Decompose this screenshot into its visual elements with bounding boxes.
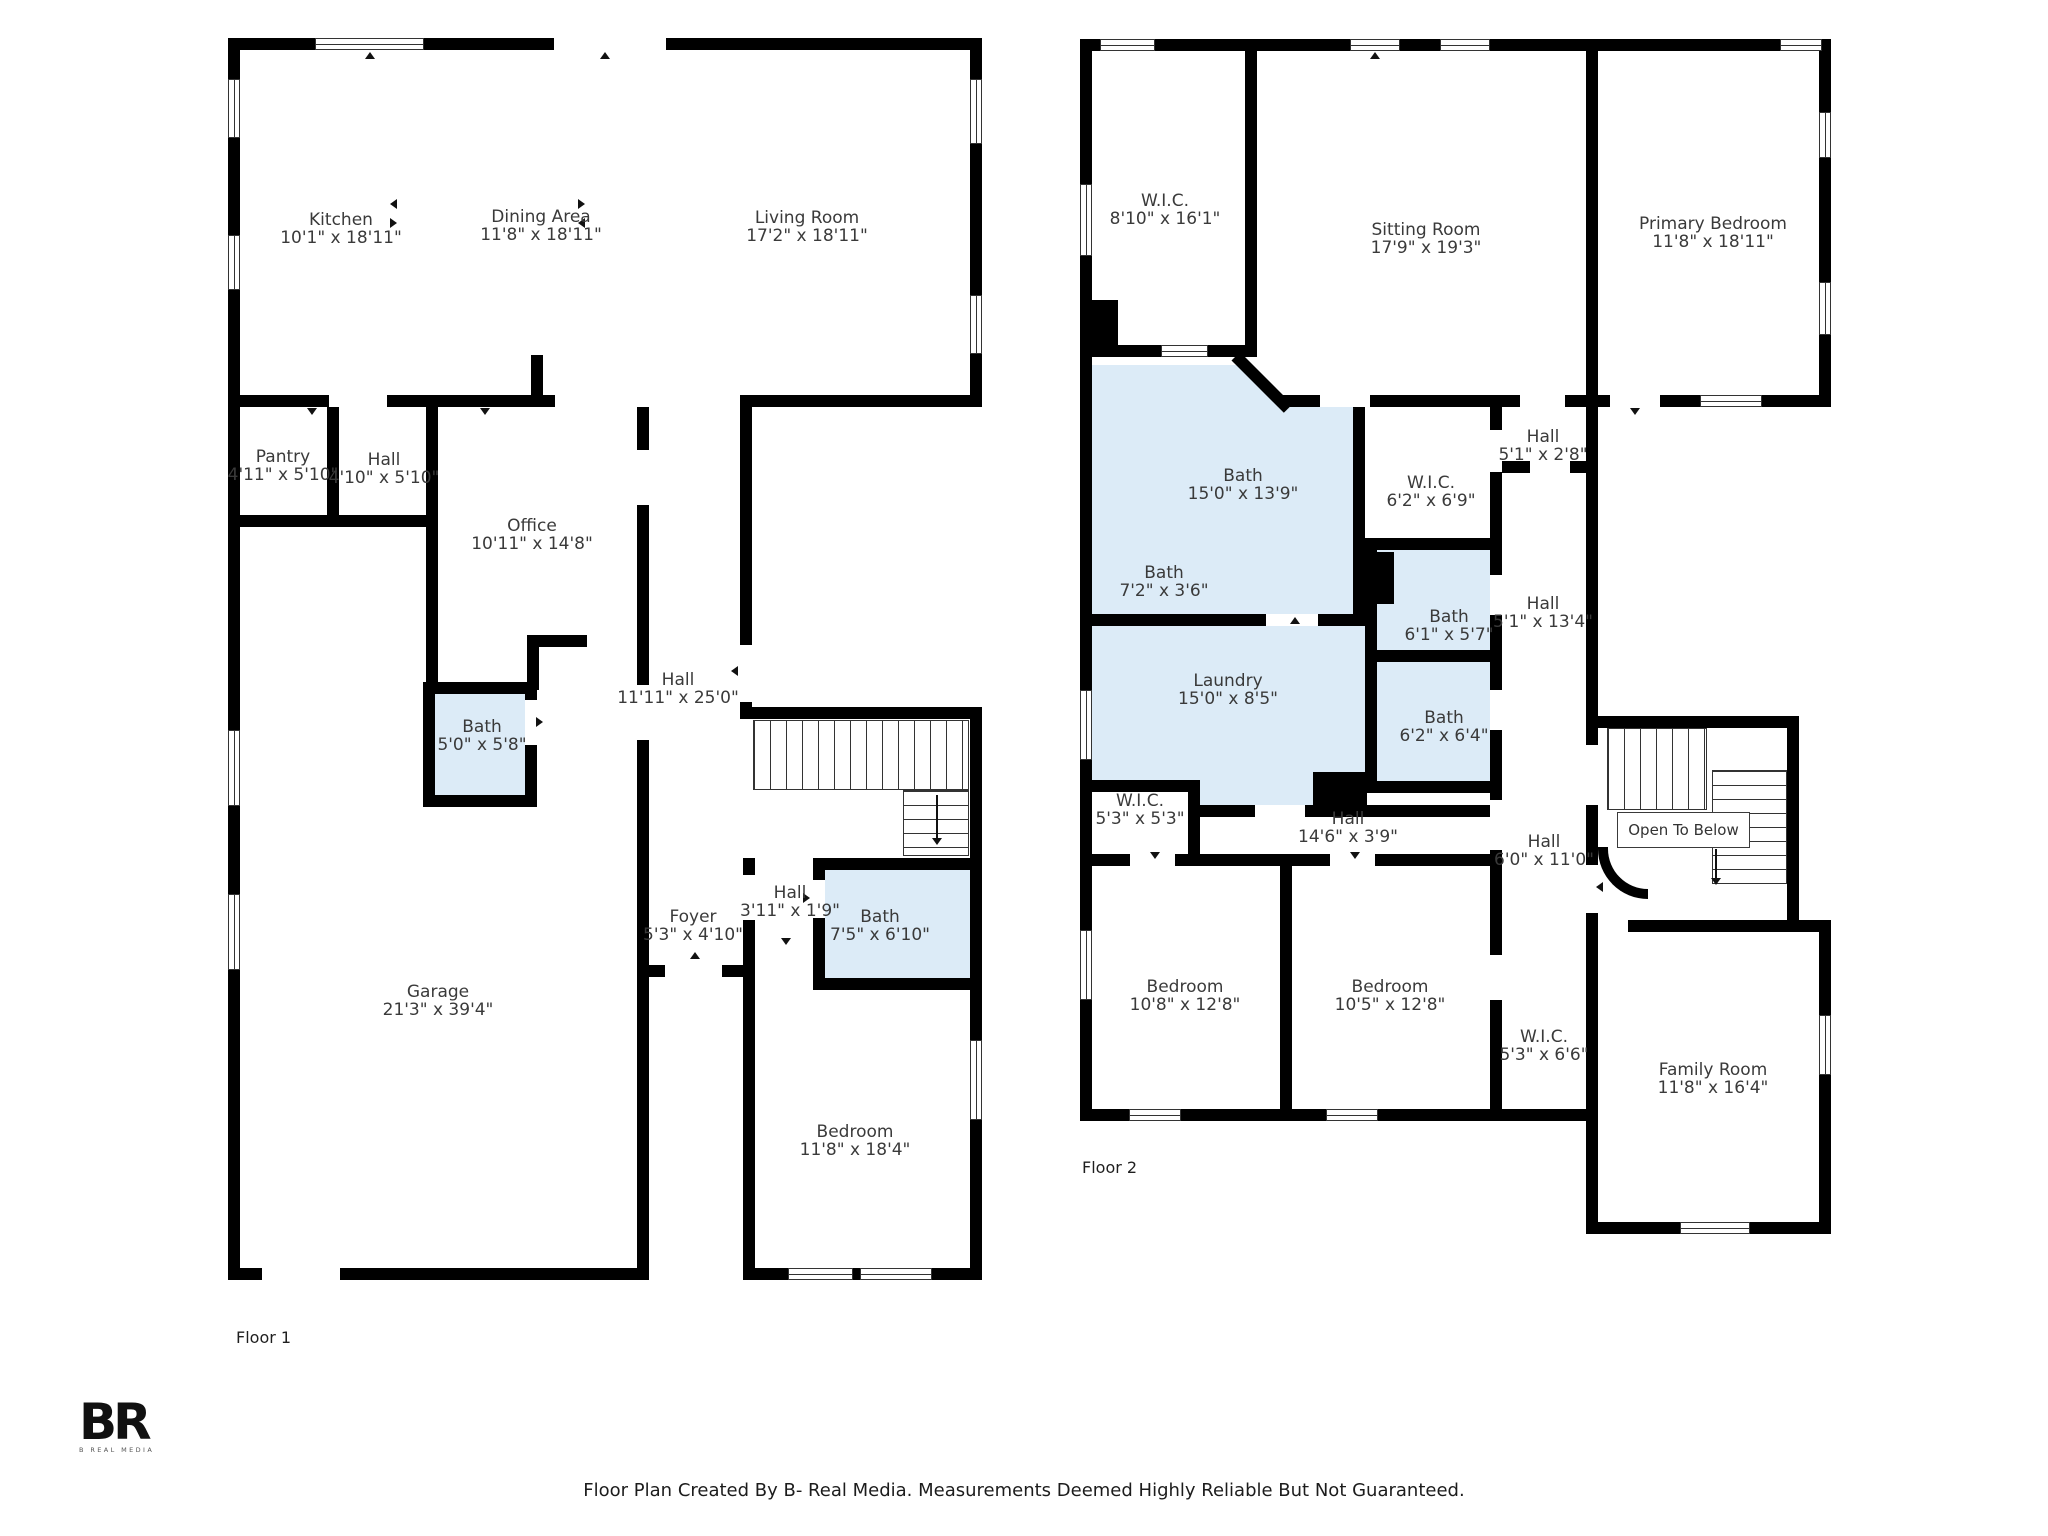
window — [1819, 282, 1831, 335]
door-opening — [1320, 395, 1370, 407]
room-dims: 11'8" x 18'4" — [800, 1141, 911, 1159]
room-dims: 10'5" x 12'8" — [1335, 996, 1446, 1014]
door-marker-icon — [1150, 852, 1160, 859]
room-label: Pantry4'11" x 5'10" — [228, 448, 339, 484]
door-opening — [1490, 955, 1502, 1000]
room-dims: 11'8" x 18'11" — [1639, 233, 1787, 251]
room-dims: 5'1" x 2'8" — [1498, 446, 1587, 464]
room-name: W.I.C. — [1110, 192, 1221, 210]
window — [1080, 690, 1092, 760]
door-marker-icon — [1350, 852, 1360, 859]
wall — [1245, 39, 1257, 355]
room-name: Hall — [329, 451, 440, 469]
room-name: Foyer — [643, 908, 743, 926]
door-marker-icon — [600, 52, 610, 59]
door-opening — [665, 965, 722, 977]
door-marker-icon — [390, 199, 397, 209]
door-opening — [554, 38, 666, 50]
wall — [228, 38, 240, 1280]
room-dims: 6'2" x 6'9" — [1386, 492, 1475, 510]
wall — [1819, 920, 1831, 1234]
window — [970, 79, 982, 144]
floor1-caption: Floor 1 — [236, 1328, 291, 1347]
window — [1129, 1109, 1181, 1121]
curved-wall — [1598, 847, 1648, 899]
floor-plan-canvas: Open To Below Kitchen10'1" x 18'11"Dinin… — [0, 0, 2048, 1536]
room-label: Office10'11" x 14'8" — [471, 517, 593, 553]
door-marker-icon — [480, 408, 490, 415]
room-label: Bath7'2" x 3'6" — [1119, 564, 1208, 600]
door-opening — [740, 645, 752, 702]
wall — [637, 407, 649, 1280]
window — [788, 1268, 853, 1280]
window — [1161, 345, 1208, 357]
room-name: Bedroom — [800, 1123, 911, 1141]
room-name: Sitting Room — [1371, 221, 1482, 239]
window — [1440, 39, 1490, 51]
wall — [1280, 866, 1292, 1109]
wall — [743, 858, 755, 1280]
door-opening — [1610, 395, 1660, 407]
wall — [423, 682, 537, 694]
wall — [531, 355, 543, 407]
window — [228, 730, 240, 806]
room-label: W.I.C.5'3" x 6'6" — [1499, 1028, 1588, 1064]
room-dims: 5'3" x 4'10" — [643, 926, 743, 944]
window — [228, 79, 240, 138]
wall — [1353, 407, 1365, 626]
room-dims: 10'8" x 12'8" — [1130, 996, 1241, 1014]
wall — [970, 707, 982, 1280]
wall — [1490, 407, 1502, 1109]
room-label: W.I.C.5'3" x 5'3" — [1095, 792, 1184, 828]
window — [1819, 1015, 1831, 1075]
door-marker-icon — [1596, 882, 1603, 892]
room-label: Kitchen10'1" x 18'11" — [280, 211, 402, 247]
door-opening — [1490, 690, 1502, 730]
staircase-f2-upper — [1607, 728, 1707, 810]
wall — [1628, 920, 1831, 932]
room-label: W.I.C.8'10" x 16'1" — [1110, 192, 1221, 228]
room-label: Bedroom11'8" x 18'4" — [800, 1123, 911, 1159]
room-label: Sitting Room17'9" x 19'3" — [1371, 221, 1482, 257]
room-dims: 3'11" x 1'9" — [740, 902, 840, 920]
room-name: W.I.C. — [1386, 474, 1475, 492]
room-label: Bedroom10'5" x 12'8" — [1335, 978, 1446, 1014]
door-opening — [1520, 395, 1565, 407]
door-marker-icon — [365, 52, 375, 59]
room-label: Hall6'0" x 11'0" — [1494, 833, 1594, 869]
room-name: Garage — [383, 983, 494, 1001]
room-label: Laundry15'0" x 8'5" — [1178, 672, 1278, 708]
room-name: Hall — [1494, 833, 1594, 851]
wall — [813, 978, 982, 990]
wall — [423, 795, 537, 807]
stair-arrow-head-f1 — [932, 838, 942, 845]
wall — [1595, 716, 1799, 728]
wall — [426, 527, 438, 690]
window — [1326, 1109, 1378, 1121]
wall — [1353, 538, 1502, 550]
door-marker-icon — [1370, 52, 1380, 59]
room-name: Bedroom — [1130, 978, 1241, 996]
room-name: W.I.C. — [1095, 792, 1184, 810]
room-dims: 5'3" x 5'3" — [1095, 810, 1184, 828]
room-name: Hall — [617, 671, 739, 689]
room-label: Hall4'10" x 5'10" — [329, 451, 440, 487]
room-name: Pantry — [228, 448, 339, 466]
room-name: Bath — [1404, 608, 1493, 626]
room-label: Bath7'5" x 6'10" — [830, 908, 930, 944]
room-name: Office — [471, 517, 593, 535]
stair-arrow-f1 — [936, 795, 938, 839]
room-label: Bath15'0" x 13'9" — [1188, 467, 1299, 503]
room-name: Bath — [1119, 564, 1208, 582]
room-name: W.I.C. — [1499, 1028, 1588, 1046]
room-dims: 17'2" x 18'11" — [746, 227, 868, 245]
room-label: Living Room17'2" x 18'11" — [746, 209, 868, 245]
door-opening — [262, 1268, 340, 1280]
room-name: Primary Bedroom — [1639, 215, 1787, 233]
window — [1680, 1222, 1750, 1234]
room-label: Bath6'1" x 5'7" — [1404, 608, 1493, 644]
open-to-below-label: Open To Below — [1617, 812, 1750, 848]
window — [1100, 39, 1155, 51]
room-label: Hall11'11" x 25'0" — [617, 671, 739, 707]
wall — [1586, 39, 1598, 407]
door-opening — [329, 395, 387, 407]
brand-logo: BR B REAL MEDIA — [79, 1398, 154, 1454]
room-dims: 5'3" x 6'6" — [1499, 1046, 1588, 1064]
window — [970, 295, 982, 354]
room-label: Garage21'3" x 39'4" — [383, 983, 494, 1019]
room-name: Hall — [1493, 595, 1593, 613]
room-dims: 8'10" x 16'1" — [1110, 210, 1221, 228]
room-dims: 10'1" x 18'11" — [280, 229, 402, 247]
room-name: Bath — [1188, 467, 1299, 485]
room-name: Kitchen — [280, 211, 402, 229]
room-dims: 5'0" x 5'8" — [437, 736, 526, 754]
room-dims: 15'0" x 13'9" — [1188, 485, 1299, 503]
room-name: Bath — [830, 908, 930, 926]
stair-arrow-head-f2 — [1711, 878, 1721, 885]
room-name: Dining Area — [480, 208, 602, 226]
floor2-caption: Floor 2 — [1082, 1158, 1137, 1177]
door-opening — [637, 450, 649, 505]
room-dims: 6'0" x 11'0" — [1494, 851, 1594, 869]
wall — [740, 395, 982, 407]
room-dims: 7'5" x 6'10" — [830, 926, 930, 944]
room-label: Foyer5'3" x 4'10" — [643, 908, 743, 944]
wall — [1080, 300, 1118, 350]
wall — [387, 395, 555, 407]
wall — [228, 515, 438, 527]
window — [1700, 395, 1762, 407]
stair-arrow-f2 — [1715, 849, 1717, 879]
window — [860, 1268, 932, 1280]
room-dims: 17'9" x 19'3" — [1371, 239, 1482, 257]
room-dims: 7'2" x 3'6" — [1119, 582, 1208, 600]
wall — [1819, 39, 1831, 407]
wall — [740, 707, 982, 719]
window — [1080, 930, 1092, 1000]
room-dims: 4'10" x 5'10" — [329, 469, 440, 487]
room-label: Bath6'2" x 6'4" — [1399, 709, 1488, 745]
brand-logo-mark: BR — [79, 1398, 154, 1446]
room-label: Hall5'1" x 13'4" — [1493, 595, 1593, 631]
room-name: Hall — [740, 884, 840, 902]
room-dims: 11'8" x 18'11" — [480, 226, 602, 244]
room-dims: 15'0" x 8'5" — [1178, 690, 1278, 708]
window — [228, 235, 240, 290]
window — [1350, 39, 1400, 51]
door-opening — [555, 395, 740, 407]
room-dims: 5'1" x 13'4" — [1493, 613, 1593, 631]
room-name: Bath — [437, 718, 526, 736]
room-dims: 21'3" x 39'4" — [383, 1001, 494, 1019]
wall — [813, 858, 825, 990]
room-label: Bath5'0" x 5'8" — [437, 718, 526, 754]
room-label: Hall14'6" x 3'9" — [1298, 810, 1398, 846]
room-name: Hall — [1298, 810, 1398, 828]
door-marker-icon — [690, 952, 700, 959]
room-name: Family Room — [1658, 1061, 1769, 1079]
wall — [423, 682, 435, 807]
brand-logo-subtext: B REAL MEDIA — [79, 1446, 154, 1454]
room-dims: 14'6" x 3'9" — [1298, 828, 1398, 846]
wall — [1365, 650, 1490, 662]
room-label: Hall3'11" x 1'9" — [740, 884, 840, 920]
room-name: Bath — [1399, 709, 1488, 727]
door-marker-icon — [1630, 408, 1640, 415]
room-label: Dining Area11'8" x 18'11" — [480, 208, 602, 244]
window — [1780, 39, 1822, 51]
wall — [1080, 614, 1367, 626]
room-name: Hall — [1498, 428, 1587, 446]
room-dims: 6'1" x 5'7" — [1404, 626, 1493, 644]
wall — [1372, 552, 1394, 604]
door-marker-icon — [781, 938, 791, 945]
window — [1080, 184, 1092, 256]
room-name: Laundry — [1178, 672, 1278, 690]
room-name: Living Room — [746, 209, 868, 227]
room-dims: 10'11" x 14'8" — [471, 535, 593, 553]
door-opening — [1586, 745, 1598, 805]
door-marker-icon — [536, 717, 543, 727]
room-label: Family Room11'8" x 16'4" — [1658, 1061, 1769, 1097]
window — [228, 894, 240, 970]
wall — [825, 858, 982, 870]
room-label: Bedroom10'8" x 12'8" — [1130, 978, 1241, 1014]
room-dims: 11'8" x 16'4" — [1658, 1079, 1769, 1097]
wall — [1787, 716, 1799, 932]
room-dims: 6'2" x 6'4" — [1399, 727, 1488, 745]
room-name: Bedroom — [1335, 978, 1446, 996]
window — [315, 38, 424, 50]
wall — [1365, 781, 1490, 793]
window — [1819, 112, 1831, 158]
wall — [527, 635, 587, 647]
door-marker-icon — [1290, 617, 1300, 624]
room-dims: 4'11" x 5'10" — [228, 466, 339, 484]
footer-disclaimer: Floor Plan Created By B- Real Media. Mea… — [0, 1480, 2048, 1501]
door-marker-icon — [307, 408, 317, 415]
wall — [228, 395, 329, 407]
room-label: W.I.C.6'2" x 6'9" — [1386, 474, 1475, 510]
room-label: Primary Bedroom11'8" x 18'11" — [1639, 215, 1787, 251]
room-label: Hall5'1" x 2'8" — [1498, 428, 1587, 464]
window — [970, 1040, 982, 1120]
room-dims: 11'11" x 25'0" — [617, 689, 739, 707]
staircase-f1-upper — [753, 720, 969, 790]
